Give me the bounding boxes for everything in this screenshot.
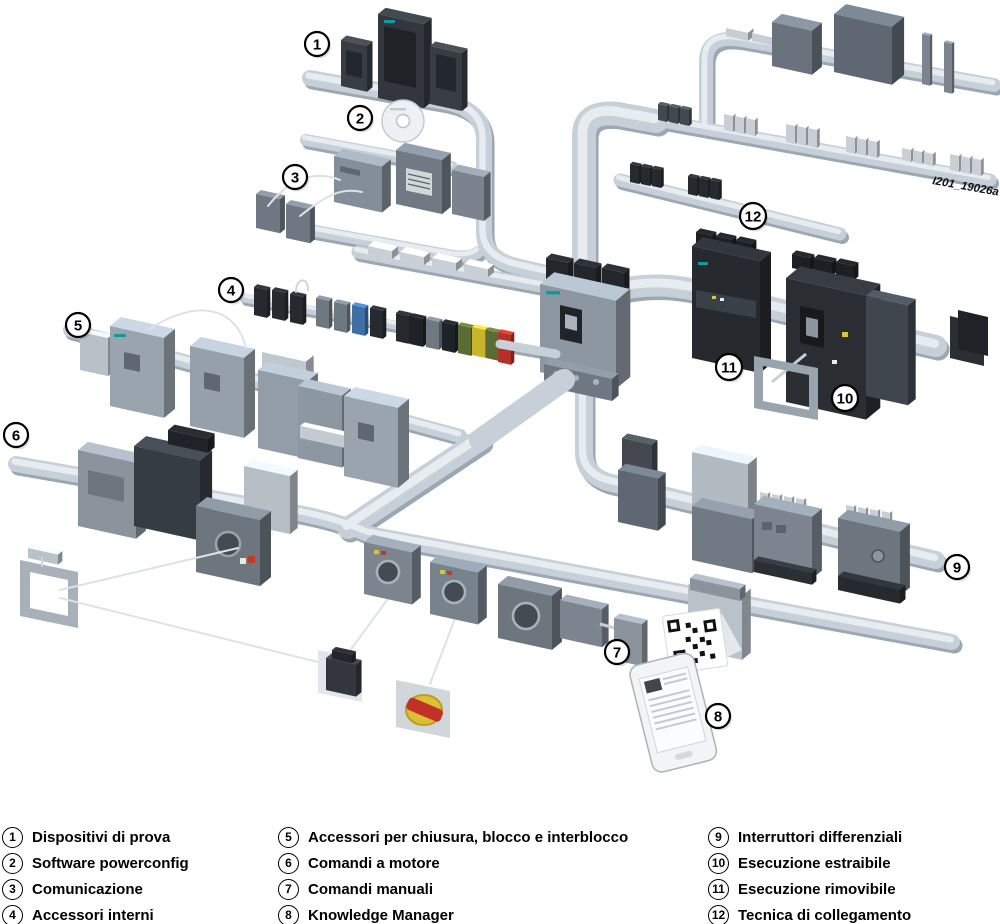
diagram-page: 1 2 3 4 5 6 7 8 9 10 11 12 I201_19026a 1… [0,0,1000,924]
legend-num-4: 4 [2,905,23,924]
legend-num-7: 7 [278,879,299,900]
legend-item-5: 5Accessori per chiusura, blocco e interb… [278,826,628,848]
rotary-knob [377,561,399,583]
legend-item-12: 12Tecnica di collegamento [708,904,911,924]
callout-7: 7 [605,640,631,667]
legend-item-6: 6Comandi a motore [278,852,628,874]
group-8-knowledge-manager [628,574,751,775]
svg-text:2: 2 [356,110,364,127]
legend-column-1: 1Dispositivi di prova 2Software powercon… [2,826,189,924]
legend-item-10: 10Esecuzione estraibile [708,852,911,874]
legend-num-2: 2 [2,853,23,874]
legend-num-6: 6 [278,853,299,874]
legend-num-9: 9 [708,827,729,848]
svg-text:3: 3 [291,169,299,186]
callout-1: 1 [305,32,331,59]
svg-text:10: 10 [837,390,854,407]
group-10-drawout [754,250,988,420]
svg-text:12: 12 [745,208,762,225]
red-button [248,556,255,563]
rail-terminals-lower [619,178,839,232]
svg-text:1: 1 [313,36,321,53]
callout-6: 6 [4,423,30,450]
svg-text:4: 4 [227,282,236,299]
legend-column-3: 9Interruttori differenziali 10Esecuzione… [708,826,911,924]
legend-item-11: 11Esecuzione rimovibile [708,878,911,900]
diagram-canvas: 1 2 3 4 5 6 7 8 9 10 11 12 I201_19026a [0,0,1000,820]
device-screen [384,26,416,88]
rotary-knob [513,603,539,629]
legend-item-9: 9Interruttori differenziali [708,826,911,848]
group-11-plugin [692,228,771,373]
rotary-knob [443,581,465,603]
legend-item-8: 8Knowledge Manager [278,904,628,924]
callout-2: 2 [348,106,374,133]
legend-num-10: 10 [708,853,729,874]
rail-center-vertical [584,113,656,288]
svg-text:9: 9 [953,559,961,576]
svg-text:5: 5 [74,317,82,334]
group-2-software-disc [382,100,424,142]
group-7-manual-operators [318,535,648,738]
legend-item-2: 2Software powerconfig [2,852,189,874]
svg-text:6: 6 [12,427,20,444]
svg-text:7: 7 [613,644,621,661]
legend-item-3: 3Comunicazione [2,878,189,900]
legend-num-12: 12 [708,905,729,924]
siemens-label [546,291,560,295]
group-9-rcd [618,434,910,604]
svg-text:11: 11 [721,359,737,376]
legend-num-3: 3 [2,879,23,900]
rail-diagonal-upper [480,380,564,440]
legend-num-11: 11 [708,879,729,900]
legend-num-5: 5 [278,827,299,848]
callout-12: 12 [740,203,768,232]
door-frame-left [20,544,78,628]
callout-9: 9 [945,555,971,582]
group-3-communication [256,143,491,243]
brand-label [384,20,395,23]
svg-text:8: 8 [714,708,722,725]
callout-11: 11 [716,354,744,383]
smartphone [628,651,719,774]
legend-column-2: 5Accessori per chiusura, blocco e interb… [278,826,628,924]
callout-4: 4 [219,278,245,305]
legend-item-7: 7Comandi manuali [278,878,628,900]
legend-item-4: 4Accessori interni [2,904,189,924]
legend-item-1: 1Dispositivi di prova [2,826,189,848]
legend-num-8: 8 [278,905,299,924]
legend-num-1: 1 [2,827,23,848]
